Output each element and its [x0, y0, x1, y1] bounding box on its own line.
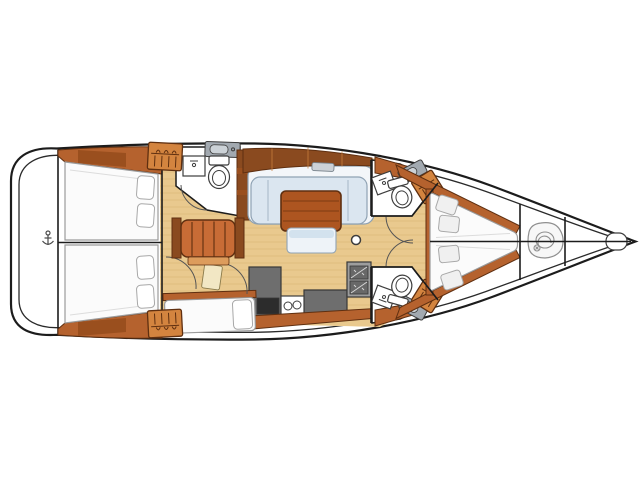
stair-rail: [235, 218, 244, 258]
pillow: [232, 299, 252, 329]
sailboat-deck-plan: [0, 0, 640, 479]
pillow: [136, 203, 155, 227]
hanger-locker-icon: [147, 142, 182, 171]
floorplan-svg: [0, 0, 640, 479]
aft-cabin-port: [58, 147, 162, 240]
deck-hatch-icon: [312, 162, 334, 171]
pillow: [136, 284, 155, 308]
pillow: [438, 215, 460, 233]
pillow: [136, 175, 155, 199]
wardrobe-aft-top: [147, 142, 182, 171]
double-bed-mattress: [65, 162, 158, 240]
companionway-stairs: [181, 220, 235, 257]
pillow: [438, 245, 460, 263]
hanger-locker-icon: [147, 309, 182, 338]
sink-faucet-icon: [183, 156, 205, 176]
aft-cabin-starboard: [58, 245, 162, 338]
counter-basin: [210, 145, 228, 155]
rope-coil-icon: [528, 223, 563, 258]
table-pole: [352, 236, 361, 245]
toilet-icon: [209, 156, 230, 189]
oven-door: [257, 298, 279, 314]
door-leaf: [201, 264, 222, 290]
stove: [347, 262, 371, 297]
pillow: [136, 255, 155, 279]
stair-rail: [172, 218, 181, 258]
wardrobe-aft-bottom: [147, 309, 182, 338]
stair-step: [188, 257, 229, 265]
